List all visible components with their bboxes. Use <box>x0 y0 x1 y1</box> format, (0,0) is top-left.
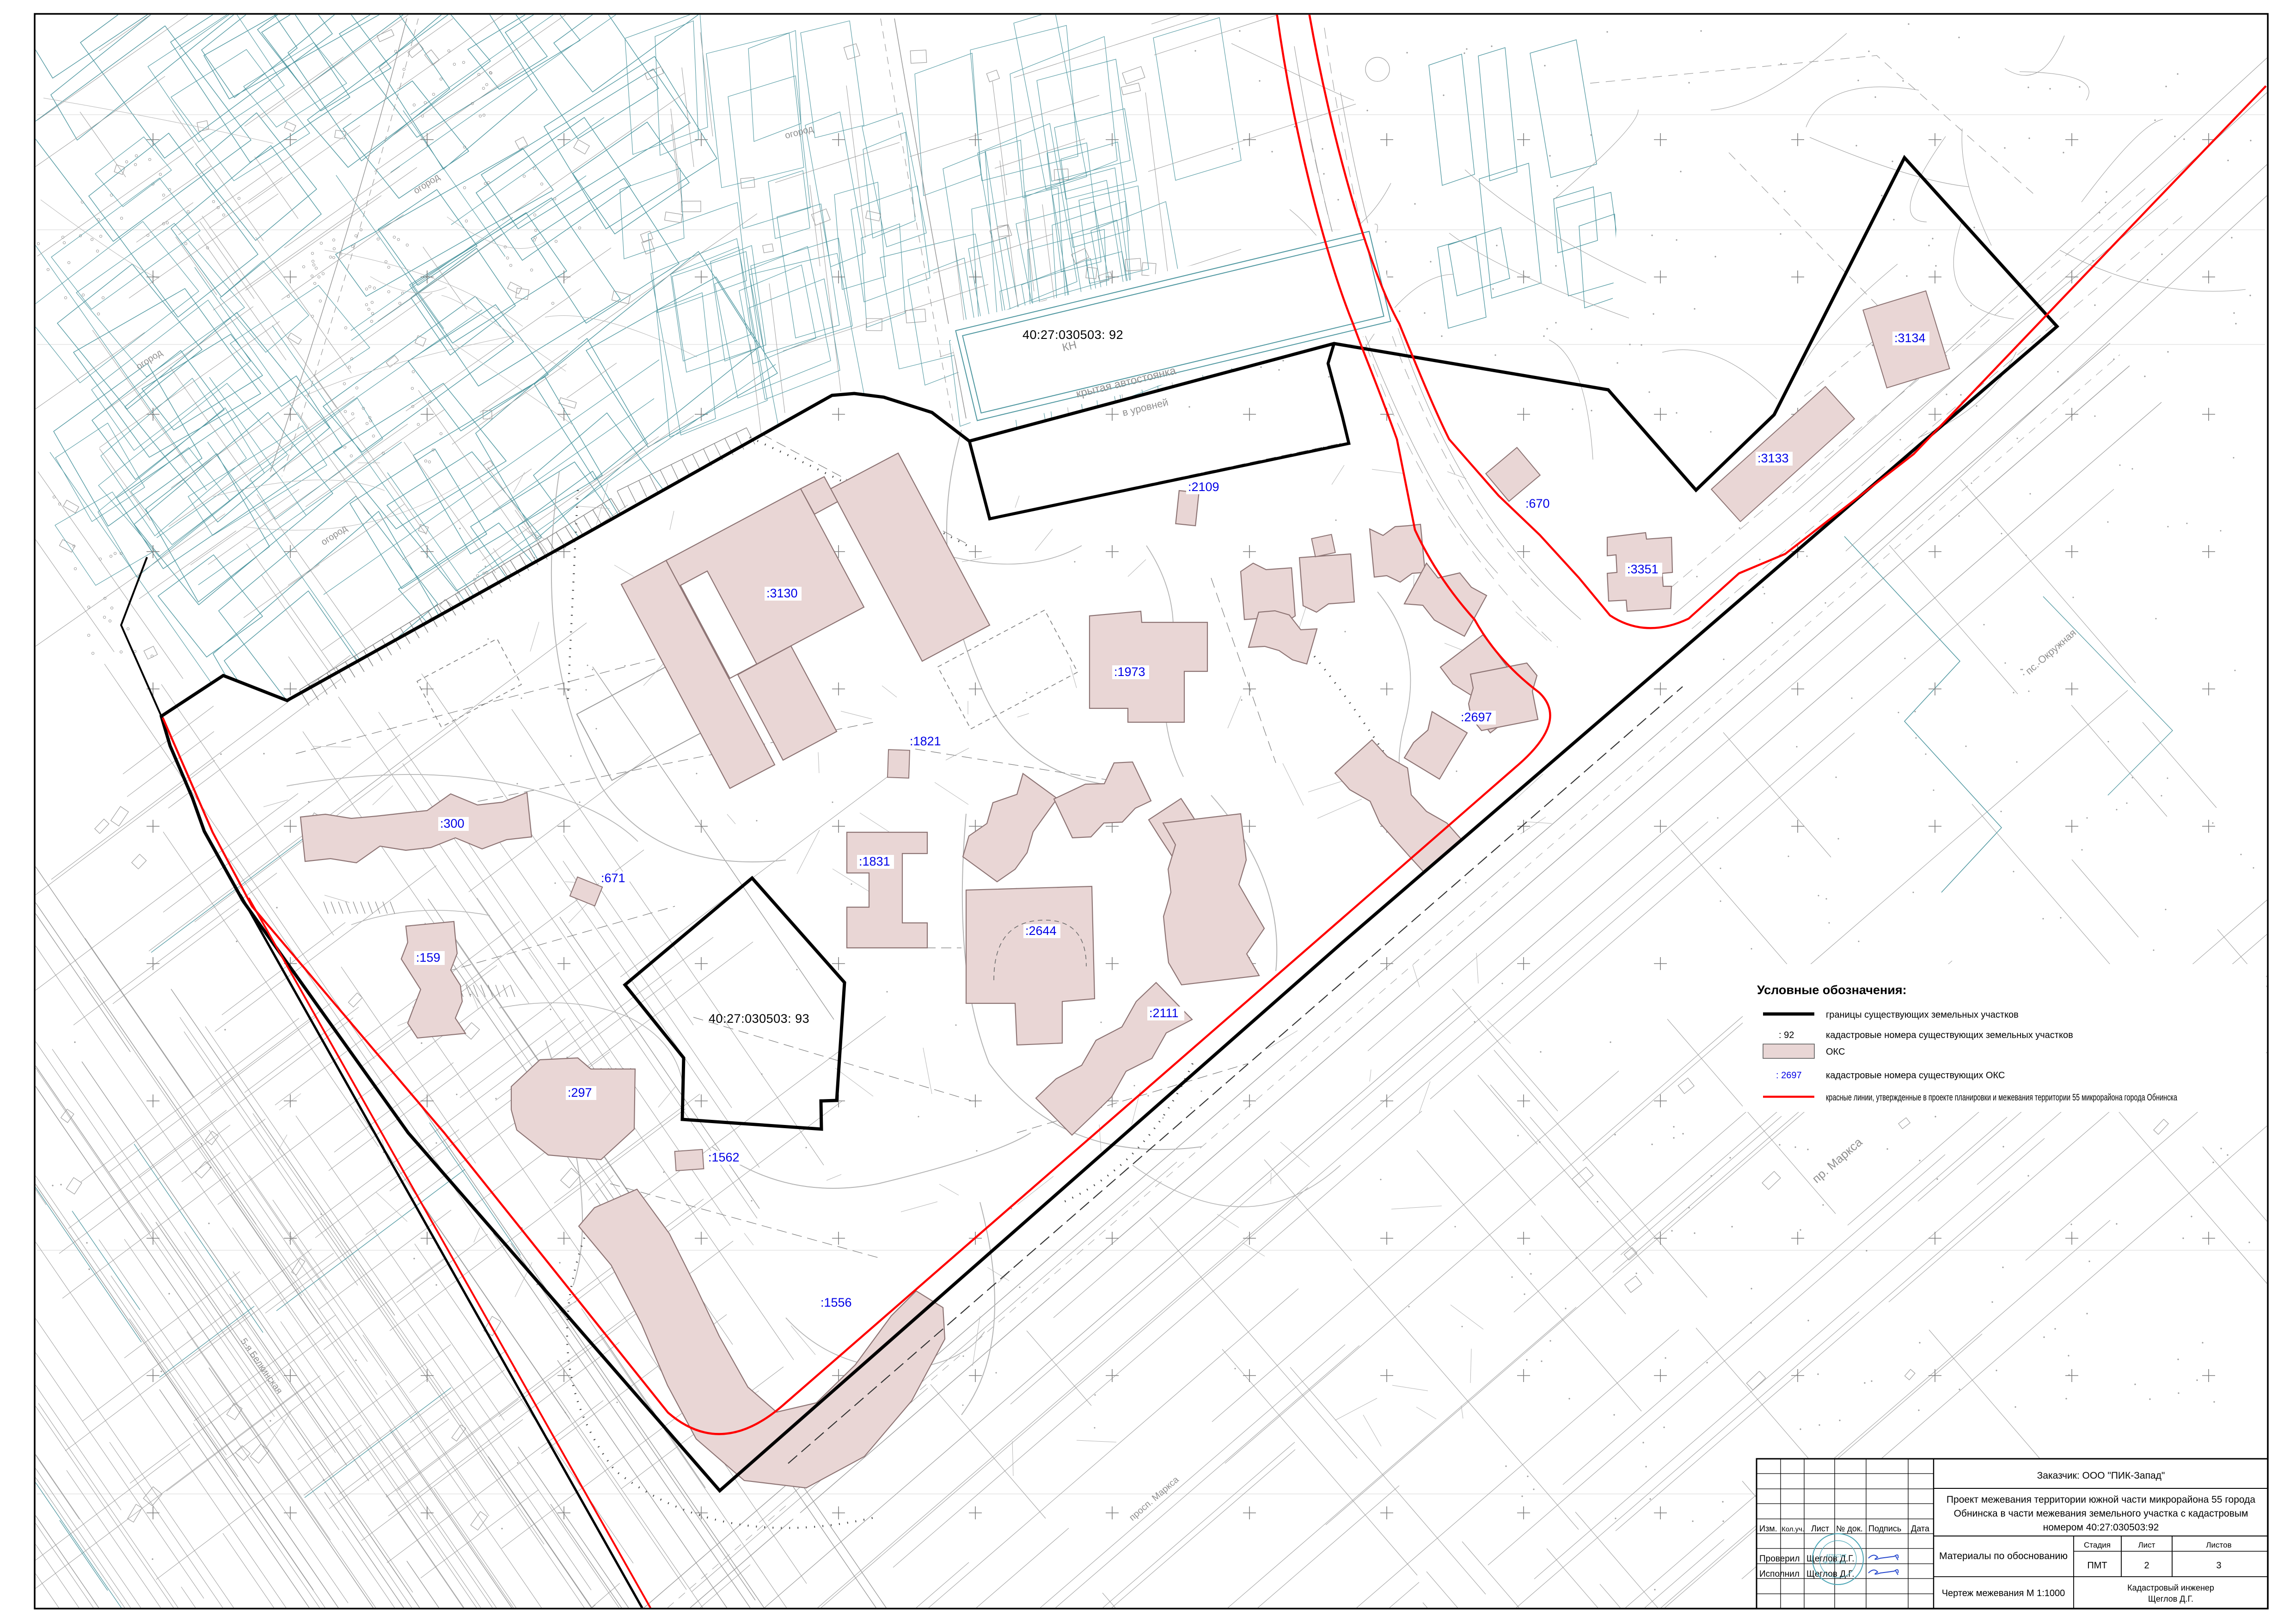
svg-text:2: 2 <box>2144 1561 2149 1571</box>
svg-text:Лист: Лист <box>1811 1524 1829 1533</box>
svg-text::297: :297 <box>568 1086 592 1100</box>
svg-text:Материалы по обоснованию: Материалы по обоснованию <box>1939 1551 2068 1561</box>
svg-text::1831: :1831 <box>859 854 890 868</box>
svg-text:Проверил: Проверил <box>1759 1554 1800 1564</box>
svg-text:Кол.уч.: Кол.уч. <box>1782 1525 1804 1533</box>
svg-text:Кадастровый инженер: Кадастровый инженер <box>2127 1583 2214 1592</box>
svg-text:40:27:030503: 93: 40:27:030503: 93 <box>709 1012 809 1026</box>
svg-text:Изм.: Изм. <box>1759 1524 1777 1533</box>
svg-text::1821: :1821 <box>910 734 941 748</box>
svg-text:ПМТ: ПМТ <box>2087 1561 2107 1571</box>
svg-text:: 2697: : 2697 <box>1776 1070 1802 1081</box>
svg-text::2109: :2109 <box>1188 480 1219 494</box>
svg-text:Лист: Лист <box>2138 1541 2155 1549</box>
svg-text::3130: :3130 <box>766 586 798 600</box>
svg-text::159: :159 <box>416 951 441 965</box>
svg-text:красные линии, утвержденные в: красные линии, утвержденные в проекте пл… <box>1826 1093 2178 1103</box>
svg-text:Щеглов Д.Г.: Щеглов Д.Г. <box>1806 1569 1855 1579</box>
svg-text::3134: :3134 <box>1894 331 1926 345</box>
svg-text:кадастровые номера существующи: кадастровые номера существующих земельны… <box>1826 1030 2073 1040</box>
svg-text::1973: :1973 <box>1114 665 1145 679</box>
svg-text:3: 3 <box>2216 1561 2221 1571</box>
svg-text::3351: :3351 <box>1627 562 1659 576</box>
svg-text:Дата: Дата <box>1911 1524 1930 1533</box>
svg-text:: 92: : 92 <box>1779 1030 1794 1040</box>
svg-text:№ 40-10-60: № 40-10-60 <box>1823 1560 1845 1565</box>
svg-text::300: :300 <box>440 817 465 830</box>
svg-text::3133: :3133 <box>1757 451 1789 465</box>
svg-text::2111: :2111 <box>1149 1006 1179 1020</box>
svg-text:Исполнил: Исполнил <box>1759 1569 1800 1579</box>
svg-text:АТТЕСТАТ: АТТЕСТАТ <box>1826 1554 1847 1558</box>
svg-text:границы существующих земельных: границы существующих земельных участков <box>1826 1010 2019 1020</box>
svg-text:Щеглов Д.Г.: Щеглов Д.Г. <box>2148 1594 2193 1604</box>
svg-text:Подпись: Подпись <box>1868 1524 1901 1533</box>
svg-text::1556: :1556 <box>820 1296 852 1309</box>
svg-text::671: :671 <box>601 871 625 885</box>
svg-text::670: :670 <box>1525 497 1550 510</box>
svg-text:Стадия: Стадия <box>2084 1541 2111 1549</box>
svg-text::1562: :1562 <box>708 1150 740 1164</box>
svg-text:кадастровые номера существующи: кадастровые номера существующих ОКС <box>1826 1070 2005 1081</box>
svg-text:Чертеж межевания М 1:1000: Чертеж межевания М 1:1000 <box>1942 1588 2065 1598</box>
svg-text:Заказчик: ООО "ПИК-Запад": Заказчик: ООО "ПИК-Запад" <box>2037 1470 2165 1481</box>
svg-text:Условные обозначения:: Условные обозначения: <box>1757 983 1907 997</box>
svg-text:Проект межевания территории юж: Проект межевания территории южной части … <box>1947 1494 2255 1505</box>
svg-text:40:27:030503: 92: 40:27:030503: 92 <box>1022 328 1123 342</box>
svg-text::2697: :2697 <box>1461 710 1492 724</box>
svg-text:Листов: Листов <box>2206 1541 2231 1549</box>
svg-text:№ док.: № док. <box>1836 1524 1863 1533</box>
svg-text:ОКС: ОКС <box>1826 1047 1845 1057</box>
svg-text:номером 40:27:030503:92: номером 40:27:030503:92 <box>2043 1522 2159 1533</box>
svg-text::2644: :2644 <box>1025 924 1057 938</box>
svg-text:Обнинска в части межевания зем: Обнинска в части межевания земельного уч… <box>1954 1508 2248 1519</box>
